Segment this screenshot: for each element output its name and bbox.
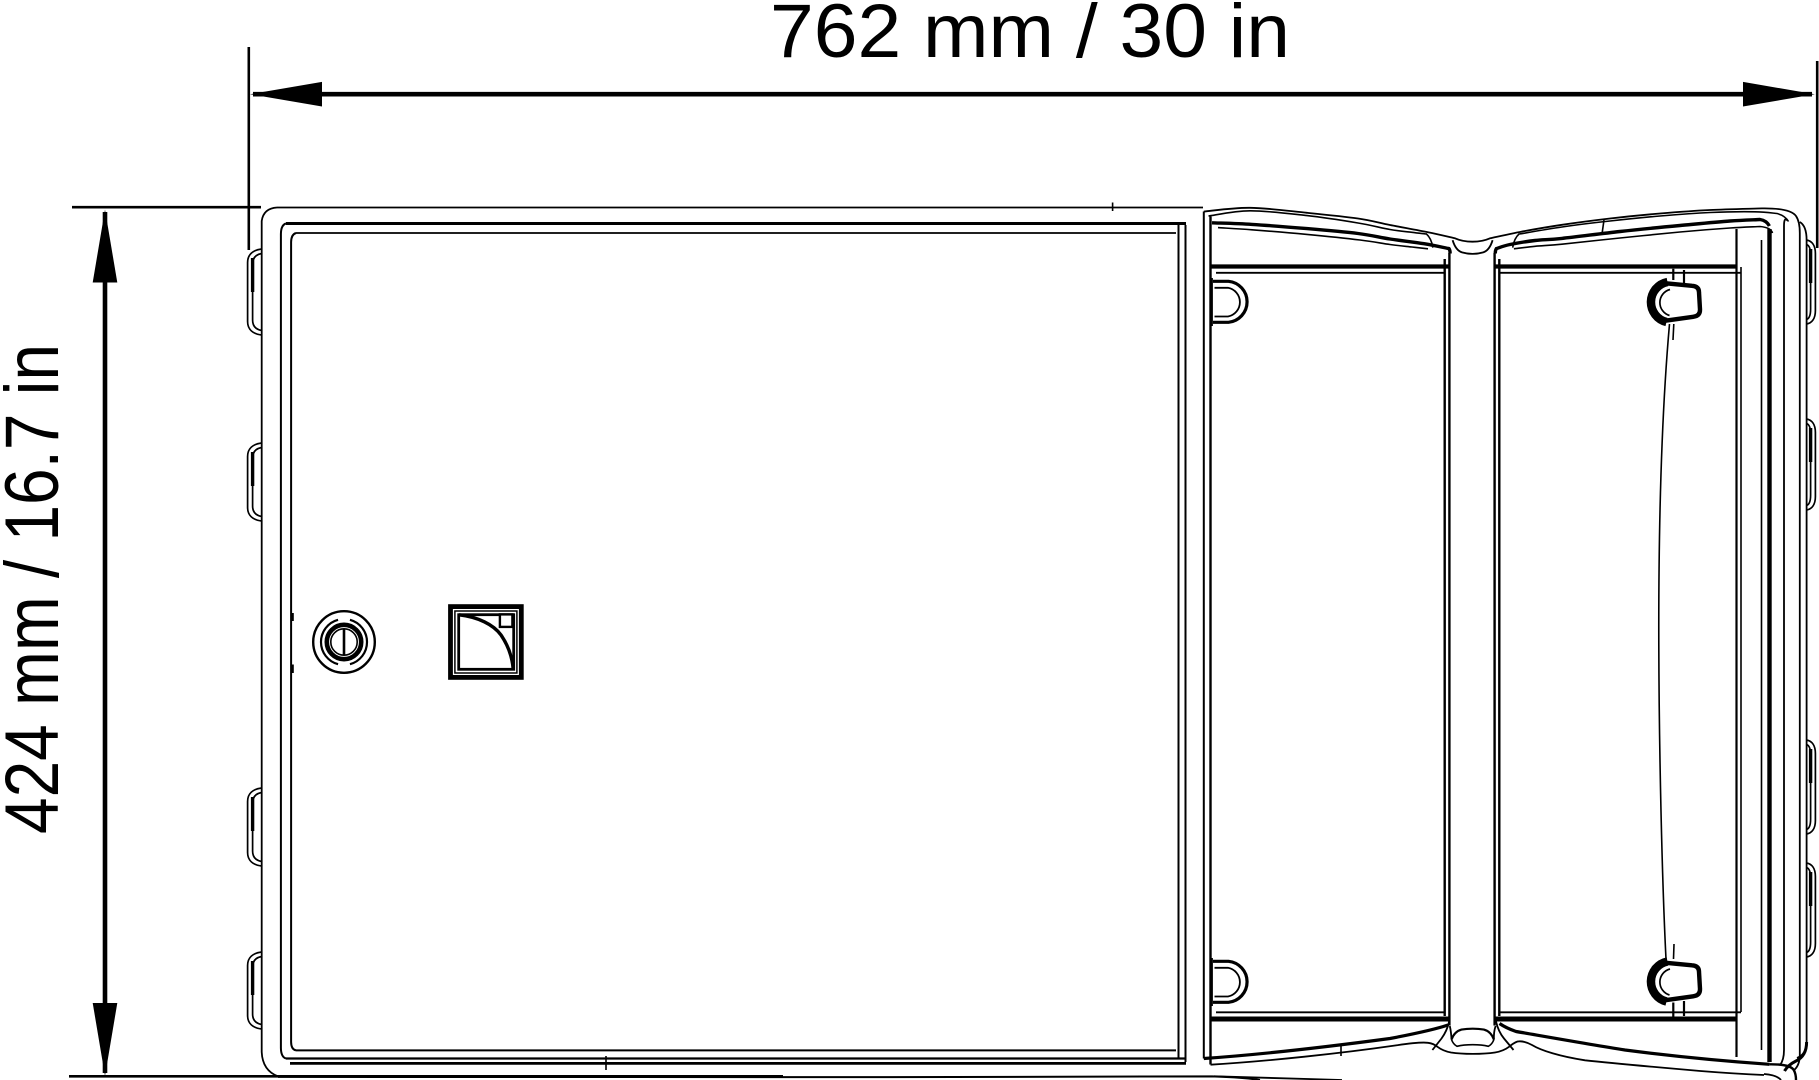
svg-text:762 mm / 30 in: 762 mm / 30 in [770,0,1290,74]
svg-text:424 mm / 16.7 in: 424 mm / 16.7 in [0,344,75,834]
